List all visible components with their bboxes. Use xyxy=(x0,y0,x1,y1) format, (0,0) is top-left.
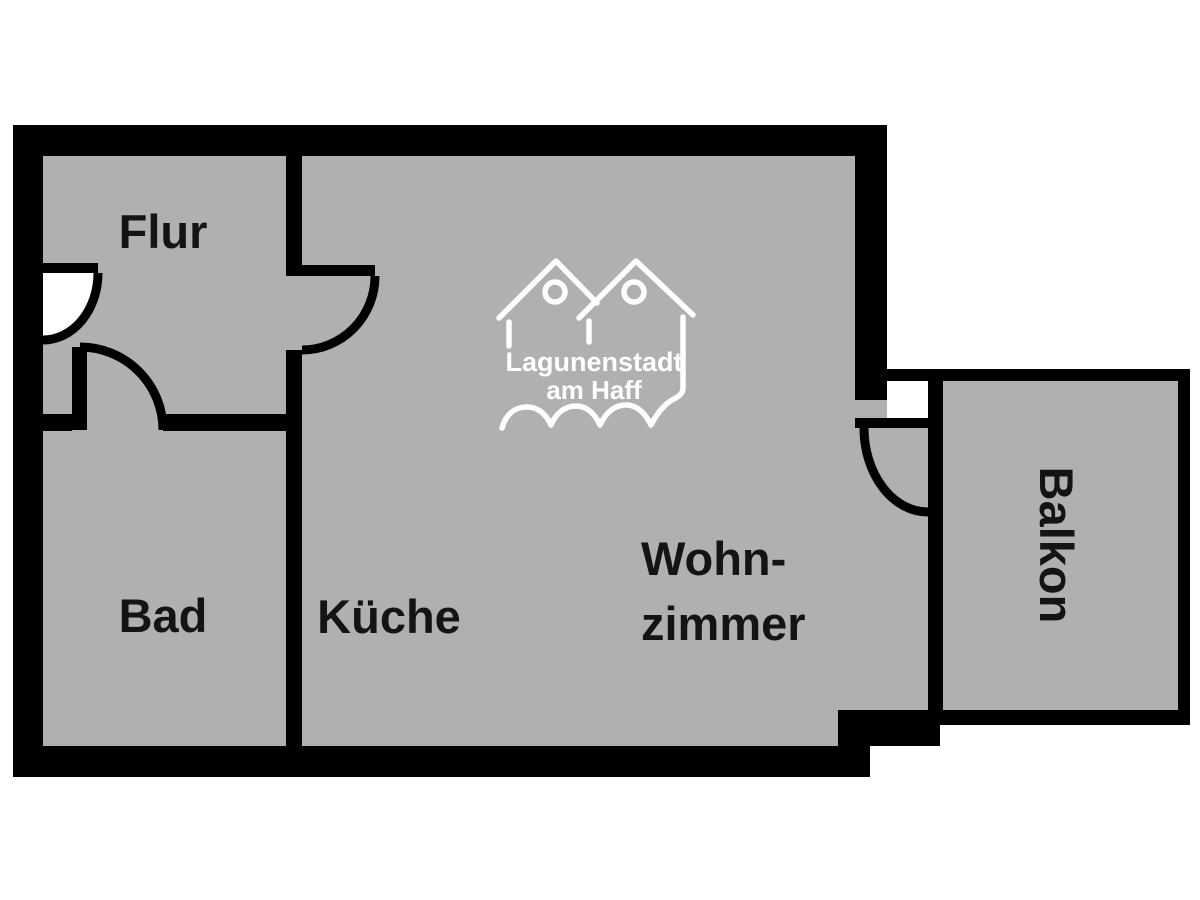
wall-flur-bad-main xyxy=(163,414,302,431)
logo-name-line2: am Haff xyxy=(546,375,642,405)
wall-outer-left xyxy=(13,125,43,777)
floor-plan-canvas: Lagunenstadt am Haff Flur Bad Küche Wohn… xyxy=(0,0,1200,900)
floor-plan: Lagunenstadt am Haff Flur Bad Küche Wohn… xyxy=(0,0,1200,900)
wohnzimmer-label-line1: Wohn- xyxy=(641,532,786,585)
wall-outer-bottom xyxy=(13,746,870,777)
wall-bottom-right-step xyxy=(838,710,940,746)
wall-balkon-right xyxy=(1178,381,1190,710)
wall-outer-top xyxy=(13,125,887,156)
wall-partition-vertical-upper xyxy=(286,156,302,265)
kueche-door-leaf xyxy=(286,265,375,276)
kueche-label: Küche xyxy=(317,590,461,643)
wall-balkon-top xyxy=(883,369,1190,381)
balcony-threshold-gap xyxy=(887,381,928,418)
balkon-door-leaf xyxy=(855,418,928,428)
wall-balkon-left xyxy=(928,381,943,725)
wall-partition-vertical-lower xyxy=(286,350,302,746)
wall-balkon-bottom xyxy=(928,710,1190,725)
bad-door-leaf xyxy=(72,347,87,430)
flur-label: Flur xyxy=(119,205,208,258)
wall-outer-right xyxy=(855,125,887,400)
balkon-label: Balkon xyxy=(1030,467,1083,624)
wohnzimmer-label-line2: zimmer xyxy=(641,597,806,650)
bad-label: Bad xyxy=(119,589,208,642)
entrance-door-leaf xyxy=(43,263,98,273)
wall-flur-bad-stub xyxy=(43,414,72,431)
logo-name-line1: Lagunenstadt xyxy=(505,347,682,377)
